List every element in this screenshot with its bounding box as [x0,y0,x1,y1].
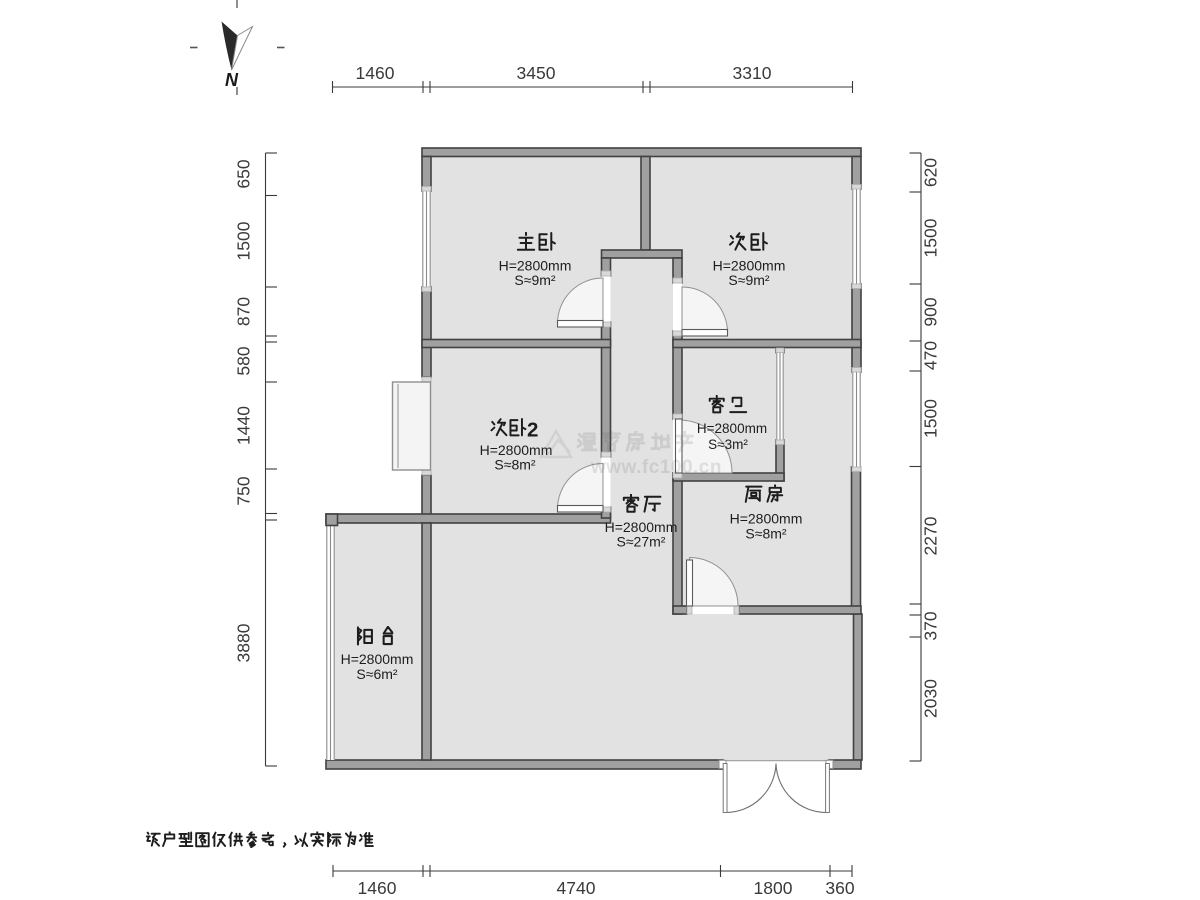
svg-text:1800: 1800 [754,878,793,898]
svg-text:1440: 1440 [234,406,254,445]
svg-text:3450: 3450 [517,63,556,83]
svg-text:470: 470 [921,341,941,370]
svg-text:1500: 1500 [921,399,941,438]
svg-text:S≈8m²: S≈8m² [494,457,535,473]
svg-text:S≈8m²: S≈8m² [745,526,786,542]
svg-text:N: N [225,70,239,90]
svg-text:www.fc100.cn: www.fc100.cn [590,457,722,478]
svg-text:S≈27m²: S≈27m² [617,534,666,550]
svg-text:750: 750 [234,476,254,505]
svg-text:H=2800mm: H=2800mm [341,651,414,667]
svg-text:650: 650 [234,159,254,188]
svg-text:370: 370 [921,611,941,640]
svg-text:3310: 3310 [733,63,772,83]
svg-text:870: 870 [234,297,254,326]
svg-text:S≈6m²: S≈6m² [356,666,397,682]
svg-text:4740: 4740 [557,878,596,898]
svg-text:3880: 3880 [234,623,254,662]
svg-text:360: 360 [825,878,854,898]
svg-text:900: 900 [921,297,941,326]
svg-text:S≈9m²: S≈9m² [728,272,769,288]
svg-text:S≈3m²: S≈3m² [708,437,748,452]
svg-text:580: 580 [234,346,254,375]
svg-text:2270: 2270 [921,516,941,555]
svg-text:1500: 1500 [234,221,254,260]
svg-text:S≈9m²: S≈9m² [514,272,555,288]
svg-text:H=2800mm: H=2800mm [697,421,767,436]
svg-text:620: 620 [921,158,941,187]
svg-text:2: 2 [527,419,538,442]
svg-text:H=2800mm: H=2800mm [730,511,803,527]
svg-text:1500: 1500 [921,218,941,257]
svg-text:1460: 1460 [356,63,395,83]
svg-text:1460: 1460 [358,878,397,898]
svg-text:2030: 2030 [921,679,941,718]
